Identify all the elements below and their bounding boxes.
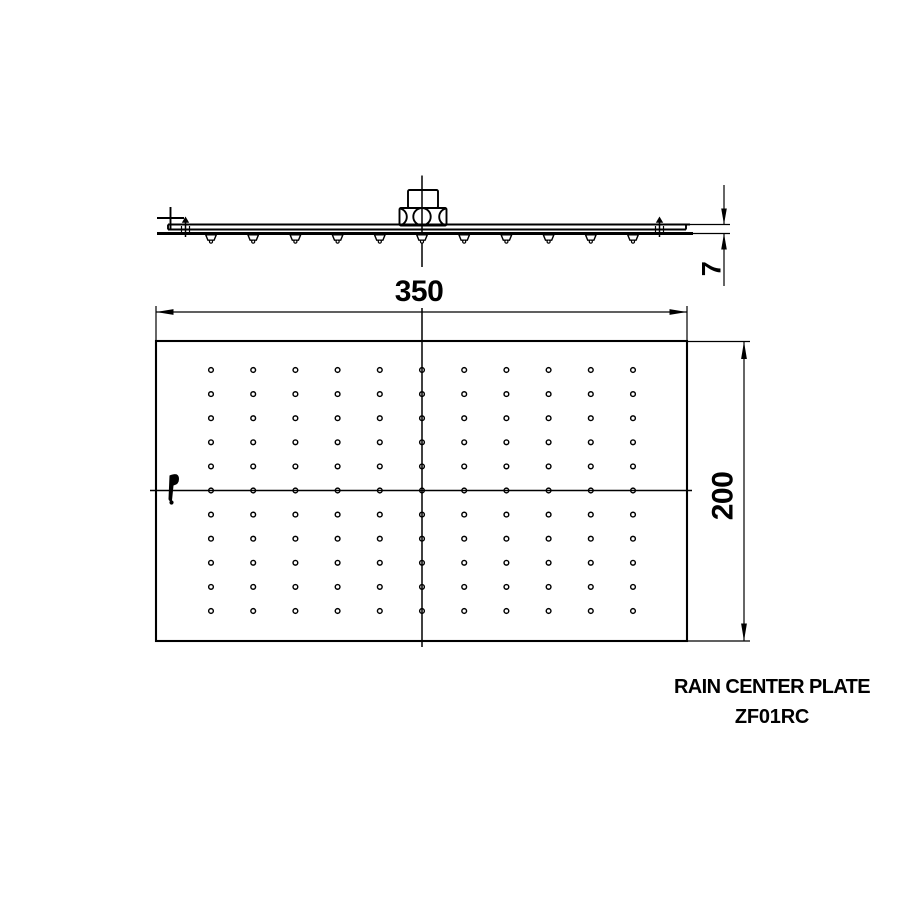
spray-hole <box>251 512 256 517</box>
spray-hole <box>293 609 298 614</box>
nozzle <box>628 235 639 240</box>
spray-hole <box>588 440 593 445</box>
spray-hole <box>546 585 551 590</box>
spray-hole <box>293 368 298 373</box>
spray-hole <box>462 536 467 541</box>
spray-hole <box>335 464 340 469</box>
spray-hole <box>335 609 340 614</box>
spray-hole <box>631 512 636 517</box>
spray-hole <box>209 464 214 469</box>
spray-hole <box>546 560 551 565</box>
thickness-value: 7 <box>697 262 727 277</box>
nozzle <box>586 235 597 240</box>
spray-hole <box>251 585 256 590</box>
plus-cross-mark <box>157 207 184 229</box>
spray-hole <box>546 392 551 397</box>
spray-hole <box>377 416 382 421</box>
logo-blob <box>169 474 180 501</box>
spray-hole <box>335 512 340 517</box>
spray-hole <box>546 512 551 517</box>
spray-hole <box>631 585 636 590</box>
logo-dot <box>169 500 173 504</box>
spray-hole <box>588 585 593 590</box>
nozzle-tip <box>294 240 297 243</box>
product-code: ZF01RC <box>653 706 891 729</box>
spray-hole <box>588 609 593 614</box>
spray-hole <box>209 416 214 421</box>
spray-hole <box>546 536 551 541</box>
spray-hole <box>335 416 340 421</box>
spray-hole <box>546 440 551 445</box>
spray-hole <box>293 512 298 517</box>
nozzle <box>332 235 343 240</box>
spray-hole <box>209 536 214 541</box>
spray-hole <box>546 416 551 421</box>
spray-hole <box>504 392 509 397</box>
spray-hole <box>377 464 382 469</box>
spray-hole <box>462 416 467 421</box>
spray-hole <box>377 512 382 517</box>
spray-hole <box>251 560 256 565</box>
plan-view <box>150 308 692 647</box>
spray-hole <box>335 585 340 590</box>
spray-hole <box>209 392 214 397</box>
spray-hole <box>209 560 214 565</box>
arrow-right <box>670 309 688 315</box>
spray-hole <box>209 609 214 614</box>
spray-hole <box>631 464 636 469</box>
spray-hole <box>251 416 256 421</box>
spray-hole <box>504 416 509 421</box>
spray-hole <box>504 464 509 469</box>
nozzle-tip <box>505 240 508 243</box>
inlet-connector <box>408 190 438 208</box>
technical-drawing: 7 350 <box>0 0 900 900</box>
spray-hole <box>588 368 593 373</box>
spray-hole <box>504 609 509 614</box>
nozzle-tip <box>631 240 634 243</box>
spray-hole <box>588 536 593 541</box>
arrow-up <box>741 342 747 360</box>
spray-hole <box>462 368 467 373</box>
nozzle-tip <box>252 240 255 243</box>
spray-hole <box>377 392 382 397</box>
spray-hole <box>588 464 593 469</box>
spray-hole <box>251 536 256 541</box>
spray-hole <box>251 609 256 614</box>
spray-hole <box>293 560 298 565</box>
spray-hole <box>504 536 509 541</box>
swivel-arc-right <box>439 208 446 225</box>
spray-hole <box>209 368 214 373</box>
spray-hole <box>377 609 382 614</box>
spray-hole <box>209 512 214 517</box>
width-value: 350 <box>395 275 444 308</box>
spray-hole <box>377 440 382 445</box>
nozzle-tip <box>589 240 592 243</box>
spray-hole <box>293 585 298 590</box>
dimension-depth: 200 <box>687 342 750 642</box>
nozzle-tip <box>420 240 423 243</box>
spray-hole <box>377 585 382 590</box>
nozzle-tip <box>336 240 339 243</box>
spray-hole <box>209 440 214 445</box>
nozzle-row <box>206 235 639 243</box>
spray-hole <box>293 464 298 469</box>
nozzle <box>290 235 301 240</box>
spray-hole <box>546 464 551 469</box>
spray-hole <box>251 440 256 445</box>
spray-hole <box>588 512 593 517</box>
spray-hole <box>293 392 298 397</box>
nozzle <box>543 235 554 240</box>
screw-head <box>656 217 663 223</box>
spray-hole <box>335 392 340 397</box>
spray-hole <box>209 585 214 590</box>
spray-hole <box>588 560 593 565</box>
nozzle <box>206 235 217 240</box>
spray-hole <box>631 536 636 541</box>
spray-hole <box>504 585 509 590</box>
spray-hole <box>504 560 509 565</box>
depth-value: 200 <box>707 472 740 521</box>
spray-hole <box>251 464 256 469</box>
spray-hole <box>462 440 467 445</box>
spray-hole <box>462 609 467 614</box>
spray-hole <box>251 368 256 373</box>
spray-hole <box>335 560 340 565</box>
spray-hole <box>546 609 551 614</box>
spray-hole <box>504 440 509 445</box>
spray-hole <box>462 464 467 469</box>
dimension-thickness: 7 <box>690 185 730 286</box>
spray-hole <box>293 536 298 541</box>
nozzle-tip <box>378 240 381 243</box>
nozzle-tip <box>463 240 466 243</box>
arrow-left <box>156 309 174 315</box>
spray-hole <box>462 560 467 565</box>
spray-hole <box>631 416 636 421</box>
spray-hole <box>631 392 636 397</box>
nozzle <box>417 235 428 240</box>
nozzle <box>375 235 386 240</box>
arrow-up <box>721 234 727 250</box>
spray-hole <box>335 368 340 373</box>
nozzle <box>248 235 259 240</box>
spray-hole <box>377 560 382 565</box>
spray-hole <box>462 512 467 517</box>
nozzle-tip <box>547 240 550 243</box>
spray-hole <box>293 416 298 421</box>
spray-hole <box>251 392 256 397</box>
spray-hole <box>588 416 593 421</box>
drawing-sheet: 7 350 <box>0 0 900 900</box>
spray-hole <box>631 560 636 565</box>
spray-hole <box>335 536 340 541</box>
spray-hole <box>546 368 551 373</box>
title-block: RAIN CENTER PLATE ZF01RC <box>653 676 891 729</box>
spray-hole <box>335 440 340 445</box>
manufacturer-logo-mark <box>169 474 180 504</box>
spray-hole <box>631 440 636 445</box>
side-view <box>157 176 693 268</box>
nozzle <box>459 235 470 240</box>
spray-hole <box>377 368 382 373</box>
spray-hole <box>377 536 382 541</box>
product-name: RAIN CENTER PLATE <box>653 676 891 699</box>
spray-hole <box>462 585 467 590</box>
spray-hole <box>462 392 467 397</box>
arrow-down <box>741 624 747 642</box>
swivel-arc-left <box>400 208 407 225</box>
arrow-down <box>721 209 727 225</box>
spray-hole <box>293 440 298 445</box>
nozzle-tip <box>209 240 212 243</box>
nozzle <box>501 235 512 240</box>
spray-hole <box>588 392 593 397</box>
spray-hole <box>631 609 636 614</box>
spray-hole <box>504 368 509 373</box>
spray-hole <box>504 512 509 517</box>
spray-hole <box>631 368 636 373</box>
